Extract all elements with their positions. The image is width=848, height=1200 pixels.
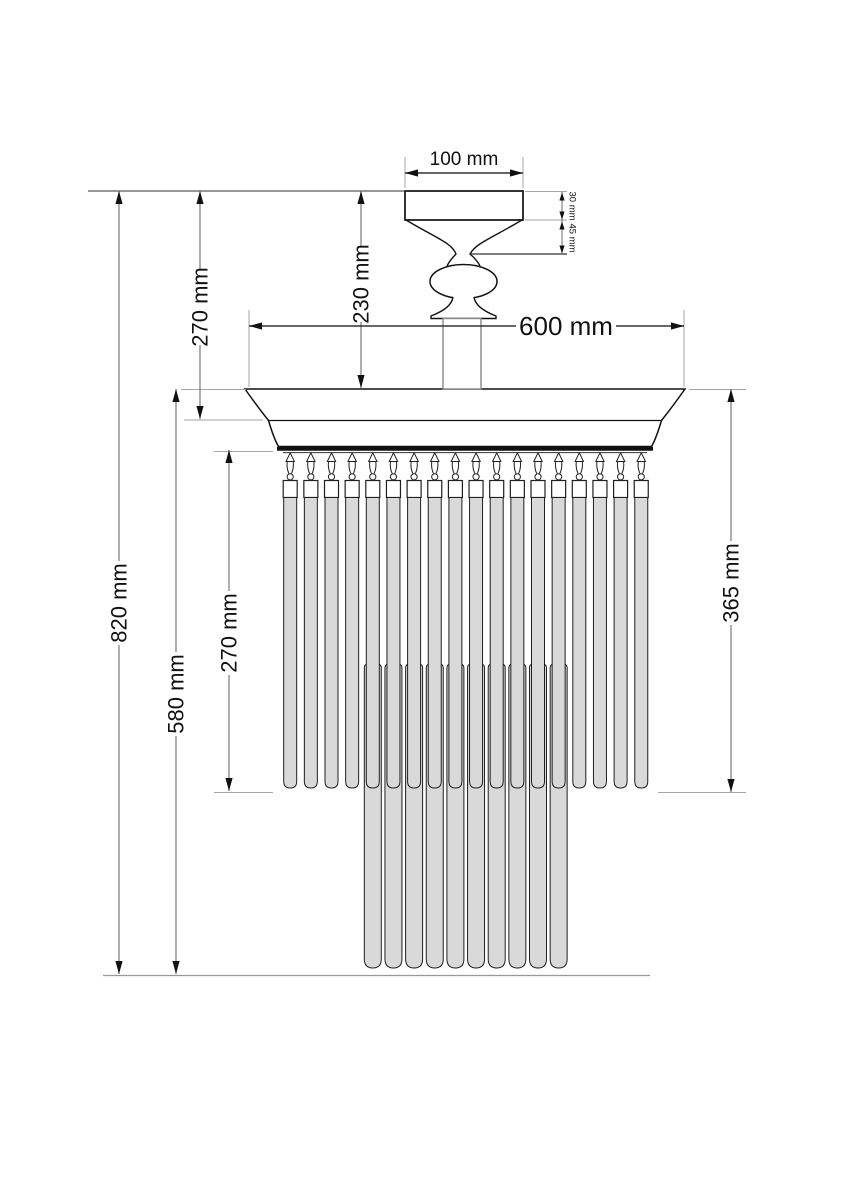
hook-triangle	[369, 453, 377, 462]
arrow-230-up	[357, 191, 364, 204]
hook-triangle	[472, 453, 480, 462]
rod-cap	[490, 481, 504, 498]
hook-ring	[349, 474, 355, 480]
hook-wire-loop	[597, 462, 603, 474]
rod-cap	[386, 481, 400, 498]
rod-cap	[304, 481, 318, 498]
front-rod	[449, 498, 462, 789]
arrow-45-down	[559, 246, 564, 254]
hook-triangle	[534, 453, 542, 462]
hook-triangle	[410, 453, 418, 462]
hook-wire-loop	[638, 462, 644, 474]
arrow-820-down	[115, 961, 122, 974]
front-rod	[470, 498, 483, 789]
hook-ring	[308, 474, 314, 480]
hook-ring	[638, 474, 644, 480]
hook-wire-loop	[555, 462, 561, 474]
front-rod	[573, 498, 586, 789]
hook-ring	[452, 474, 458, 480]
hook-ring	[576, 474, 582, 480]
hook-ring	[535, 474, 541, 480]
hook-ring	[556, 474, 562, 480]
label-230-group: 230 mm	[348, 244, 374, 323]
rod-cap	[531, 481, 545, 498]
hook-ring	[618, 474, 624, 480]
hook-wire-loop	[432, 462, 438, 474]
hook-ring	[514, 474, 520, 480]
hook-ring	[390, 474, 396, 480]
hook-ring	[287, 474, 293, 480]
label-270-left-group: 270 mm	[187, 267, 213, 346]
rod-cap	[614, 481, 628, 498]
rod-cap	[407, 481, 421, 498]
hook-triangle	[348, 453, 356, 462]
arrow-580-down	[172, 961, 179, 974]
arrow-270-left-up	[196, 191, 203, 204]
front-rod	[325, 498, 338, 789]
hook-triangle	[637, 453, 645, 462]
arrow-270-left-down	[196, 406, 203, 419]
hook-ring	[411, 474, 417, 480]
front-rod	[284, 498, 297, 789]
label-crown-top-to-short-rod: 365 mm	[719, 543, 744, 622]
label-ceiling-to-crown-band: 270 mm	[188, 267, 213, 346]
hook-wire-loop	[514, 462, 520, 474]
hook-wire-loop	[452, 462, 458, 474]
canopy-assembly	[405, 191, 523, 389]
hook-wire-loop	[411, 462, 417, 474]
neck-left-curve	[406, 220, 456, 266]
hook-triangle	[575, 453, 583, 462]
hook-triangle	[451, 453, 459, 462]
hook-triangle	[493, 453, 501, 462]
rod-cap	[572, 481, 586, 498]
front-rod	[593, 498, 606, 789]
arrow-30-up	[559, 193, 564, 201]
hanging-rods-group	[283, 453, 648, 968]
drawing-page: 100 mm 30 mm 45 mm 230 mm 270 mm 600 mm …	[0, 0, 848, 1200]
arrow-600-right	[671, 322, 684, 329]
arrow-100-left	[405, 169, 418, 176]
label-580-group: 580 mm	[163, 652, 189, 736]
front-rod	[366, 498, 379, 789]
crown-body	[245, 389, 685, 447]
stem-ball	[430, 265, 497, 299]
hook-triangle	[554, 453, 562, 462]
label-365-group: 365 mm	[718, 541, 744, 625]
rod-cap	[428, 481, 442, 498]
label-canopy-height: 30 mm	[567, 191, 578, 220]
hook-triangle	[616, 453, 624, 462]
rod-cap	[634, 481, 648, 498]
hook-wire-loop	[494, 462, 500, 474]
front-rod	[304, 498, 317, 789]
rod-cap	[593, 481, 607, 498]
hook-wire-loop	[390, 462, 396, 474]
label-neck-height-group: 45 mm	[567, 223, 578, 252]
front-rod	[490, 498, 503, 789]
front-rod	[428, 498, 441, 789]
rod-cap	[552, 481, 566, 498]
hook-ring	[473, 474, 479, 480]
hook-triangle	[327, 453, 335, 462]
front-rod	[614, 498, 627, 789]
hook-triangle	[307, 453, 315, 462]
hook-ring	[370, 474, 376, 480]
rod-cap	[366, 481, 380, 498]
hook-wire-loop	[370, 462, 376, 474]
hook-triangle	[513, 453, 521, 462]
hook-wire-loop	[328, 462, 334, 474]
hook-wire-loop	[576, 462, 582, 474]
hook-triangle	[596, 453, 604, 462]
hook-wire-loop	[617, 462, 623, 474]
hook-ring	[328, 474, 334, 480]
stem-trumpet	[431, 297, 496, 319]
label-neck-height: 45 mm	[567, 223, 578, 252]
hook-ring	[432, 474, 438, 480]
rod-cap	[345, 481, 359, 498]
label-crown-to-long-rod: 580 mm	[164, 654, 189, 733]
arrow-100-right	[510, 169, 523, 176]
stem-tube	[443, 319, 481, 390]
arrow-365-down	[727, 779, 734, 792]
hook-triangle	[389, 453, 397, 462]
arrow-600-left	[249, 322, 262, 329]
front-rod	[408, 498, 421, 789]
label-270-inner-group: 270 mm	[216, 591, 242, 675]
arrow-30-down	[559, 212, 564, 220]
label-600-group: 600 mm	[516, 311, 616, 341]
front-rod	[387, 498, 400, 789]
arrow-270-inner-down	[225, 778, 232, 791]
front-rod	[532, 498, 545, 789]
label-ceiling-to-crown: 230 mm	[349, 244, 374, 323]
front-rod	[552, 498, 565, 789]
arrow-365-up	[727, 389, 734, 402]
hook-wire-loop	[349, 462, 355, 474]
rod-cap	[469, 481, 483, 498]
front-rod	[511, 498, 524, 789]
arrow-45-up	[559, 222, 564, 230]
label-canopy-width: 100 mm	[430, 149, 499, 170]
label-total-height: 820 mm	[107, 563, 132, 642]
label-crown-diameter: 600 mm	[519, 311, 613, 341]
hook-wire-loop	[535, 462, 541, 474]
front-rod	[635, 498, 648, 789]
arrow-820-up	[115, 191, 122, 204]
label-rim-to-short-rod: 270 mm	[217, 593, 242, 672]
label-canopy-height-group: 30 mm	[567, 191, 578, 220]
chandelier-dimension-drawing: 100 mm 30 mm 45 mm 230 mm 270 mm 600 mm …	[0, 0, 848, 1200]
hook-triangle	[286, 453, 294, 462]
hook-wire-loop	[287, 462, 293, 474]
arrow-580-up	[172, 389, 179, 402]
hook-triangle	[431, 453, 439, 462]
arrow-230-down	[357, 375, 364, 388]
rod-cap	[510, 481, 524, 498]
rod-cap	[325, 481, 339, 498]
hook-wire-loop	[308, 462, 314, 474]
crown-plate	[245, 389, 685, 453]
hook-ring	[494, 474, 500, 480]
rod-cap	[448, 481, 462, 498]
hook-ring	[597, 474, 603, 480]
ceiling-canopy	[405, 191, 523, 220]
label-820-group: 820 mm	[106, 561, 132, 645]
hook-wire-loop	[473, 462, 479, 474]
rod-cap	[283, 481, 297, 498]
neck-right-curve	[470, 220, 522, 266]
front-rod	[346, 498, 359, 789]
